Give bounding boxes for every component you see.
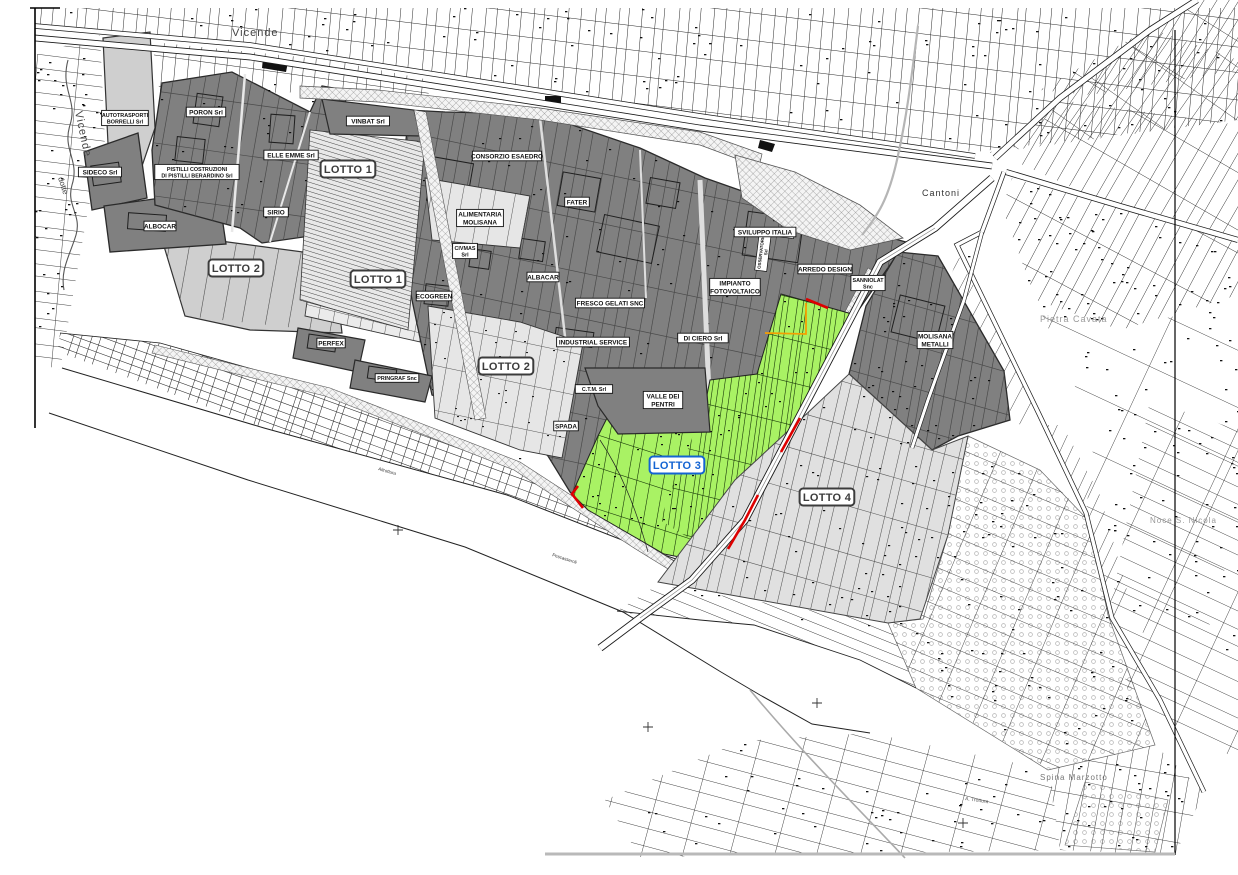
svg-text:CIVMAS: CIVMAS [455, 246, 476, 252]
svg-text:Noce S. Nicola: Noce S. Nicola [1150, 516, 1217, 525]
svg-text:CONSORZIO ESAEDRO: CONSORZIO ESAEDRO [471, 154, 543, 161]
svg-text:ALBACAR: ALBACAR [527, 275, 559, 282]
svg-text:PERFEX: PERFEX [318, 341, 344, 348]
svg-text:VALLE DEI: VALLE DEI [647, 394, 680, 401]
svg-text:Snc: Snc [863, 285, 873, 291]
svg-text:LOTTO 1: LOTTO 1 [354, 274, 402, 286]
svg-text:VINBAT Srl: VINBAT Srl [351, 119, 385, 126]
svg-text:SANNIOLAT: SANNIOLAT [852, 278, 884, 284]
svg-text:SVILUPPO ITALIA: SVILUPPO ITALIA [738, 230, 793, 237]
svg-text:PORON Srl: PORON Srl [189, 110, 223, 117]
svg-text:ARREDO DESIGN: ARREDO DESIGN [798, 267, 852, 274]
svg-text:Pietra Cavata: Pietra Cavata [1040, 314, 1108, 324]
svg-text:METALLI: METALLI [921, 341, 948, 348]
svg-text:SIDECO Srl: SIDECO Srl [83, 170, 118, 177]
svg-text:AUTOTRASPORTI: AUTOTRASPORTI [102, 113, 149, 119]
svg-text:SIRIO: SIRIO [267, 210, 284, 217]
svg-text:LOTTO 4: LOTTO 4 [803, 492, 852, 504]
svg-text:LOTTO 2: LOTTO 2 [482, 361, 530, 373]
svg-text:LOTTO 3: LOTTO 3 [653, 460, 701, 472]
svg-text:DI PISTILLI BERARDINO Srl: DI PISTILLI BERARDINO Srl [161, 174, 233, 180]
svg-text:FRESCO GELATI SNC: FRESCO GELATI SNC [577, 301, 644, 308]
svg-text:Srl: Srl [461, 253, 469, 259]
svg-text:ELLE EMME Srl: ELLE EMME Srl [267, 153, 315, 160]
svg-text:MOLISANA: MOLISANA [463, 219, 497, 226]
svg-text:LOTTO 1: LOTTO 1 [324, 164, 372, 176]
svg-text:Srl: Srl [763, 249, 769, 255]
svg-text:FOTOVOLTAICO: FOTOVOLTAICO [710, 288, 760, 295]
svg-text:ALIMENTARIA: ALIMENTARIA [458, 212, 502, 219]
svg-text:IMPIANTO: IMPIANTO [719, 281, 750, 288]
svg-text:ALBOCAR: ALBOCAR [144, 224, 176, 231]
svg-text:Vicende: Vicende [232, 27, 279, 39]
svg-text:PENTRI: PENTRI [651, 401, 675, 408]
svg-text:MOLISANA: MOLISANA [918, 334, 952, 341]
svg-text:PISTILLI COSTRUZIONI: PISTILLI COSTRUZIONI [167, 167, 228, 173]
svg-text:BORRELLI Srl: BORRELLI Srl [107, 120, 144, 126]
svg-text:LOTTO 2: LOTTO 2 [212, 263, 260, 275]
svg-text:C.T.M. Srl: C.T.M. Srl [582, 387, 607, 393]
svg-text:Cantoni: Cantoni [922, 188, 960, 198]
svg-text:FATER: FATER [567, 200, 588, 207]
svg-text:DI CIERO Srl: DI CIERO Srl [684, 336, 723, 343]
svg-text:SPADA: SPADA [555, 424, 577, 431]
svg-text:PRINGRAF Snc: PRINGRAF Snc [377, 376, 417, 382]
svg-text:ECOGREEN: ECOGREEN [416, 294, 453, 301]
svg-text:Spina Marzotto: Spina Marzotto [1040, 773, 1108, 782]
svg-text:INDUSTRIAL SERVICE: INDUSTRIAL SERVICE [559, 340, 628, 347]
